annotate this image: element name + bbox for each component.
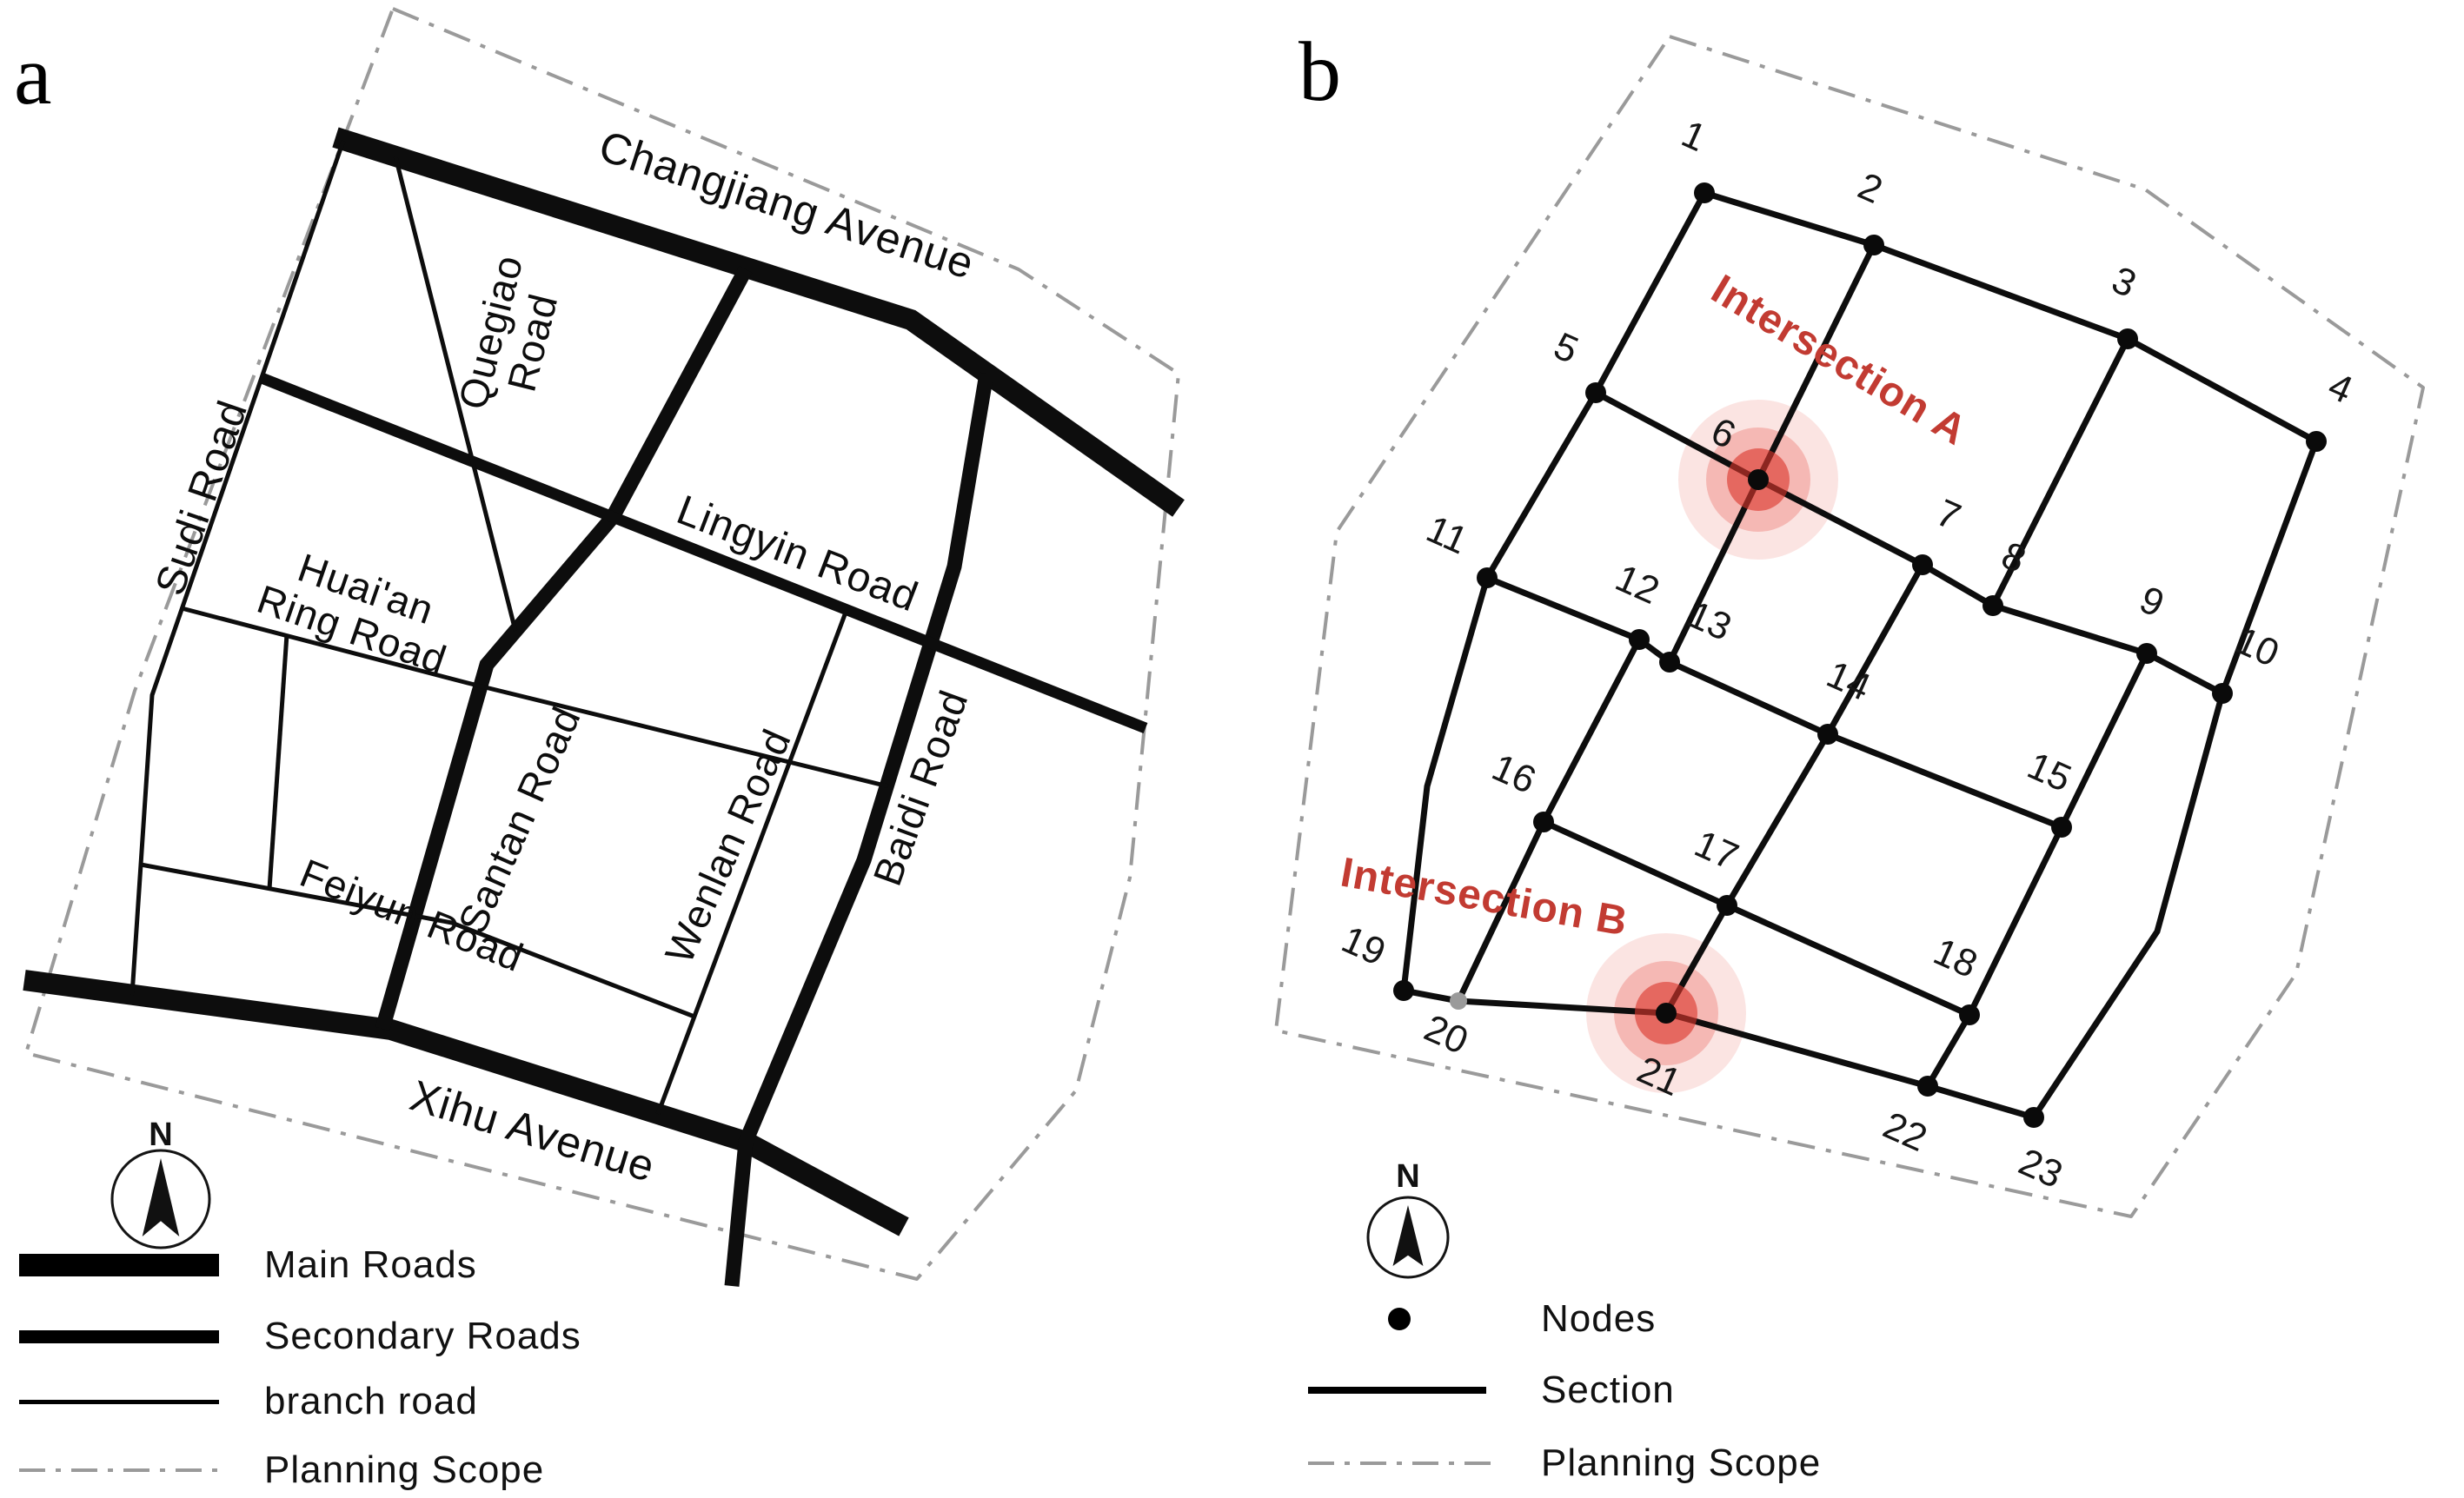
node-label-13: 13 bbox=[1682, 593, 1738, 649]
section-edge-11-19 bbox=[1404, 578, 1487, 991]
swatch-box bbox=[19, 1468, 219, 1472]
node-10 bbox=[2212, 683, 2233, 704]
node-23 bbox=[2023, 1107, 2044, 1128]
node-label-7: 7 bbox=[1930, 491, 1967, 539]
node-label-4: 4 bbox=[2322, 364, 2359, 412]
planning-scope-swatch-icon bbox=[1308, 1462, 1491, 1465]
road-label-changjiang-avenue: Changjiang Avenue bbox=[594, 122, 980, 288]
legend-a-row-secondary: Secondary Roads bbox=[19, 1312, 732, 1361]
node-label-12: 12 bbox=[1610, 556, 1666, 613]
node-label-15: 15 bbox=[2022, 744, 2078, 800]
legend-a-label-main: Main Roads bbox=[264, 1243, 477, 1287]
section-swatch-icon bbox=[1308, 1387, 1486, 1394]
node-12 bbox=[1629, 629, 1650, 650]
swatch-box bbox=[1308, 1308, 1491, 1330]
panel-b-letter: b bbox=[1298, 30, 1341, 115]
legend-b-label-scope: Planning Scope bbox=[1541, 1442, 1821, 1485]
node-3 bbox=[2117, 328, 2138, 349]
node-label-22: 22 bbox=[1877, 1104, 1934, 1160]
node-5 bbox=[1585, 382, 1606, 403]
branch-road-swatch-icon bbox=[19, 1400, 219, 1404]
node-9 bbox=[2136, 643, 2157, 664]
section-edge-9-10 bbox=[2147, 653, 2222, 693]
node-13 bbox=[1659, 652, 1680, 673]
section-edge-18-22 bbox=[1928, 1015, 1969, 1086]
section-edge-3-4 bbox=[2128, 339, 2316, 441]
node-label-19: 19 bbox=[1336, 918, 1392, 974]
section-edge-15-18 bbox=[1969, 827, 2062, 1015]
section-edge-5-11 bbox=[1487, 393, 1596, 578]
road-west-connector bbox=[269, 634, 287, 889]
node-label-16: 16 bbox=[1486, 746, 1543, 802]
node-label-8: 8 bbox=[1996, 534, 2032, 581]
planning-scope-swatch-icon bbox=[19, 1468, 219, 1472]
legend-a-label-scope: Planning Scope bbox=[264, 1448, 544, 1492]
road-label-xihu-avenue: Xihu Avenue bbox=[405, 1070, 661, 1191]
section-edge-22-23 bbox=[1928, 1086, 2034, 1117]
node-16 bbox=[1533, 812, 1554, 832]
node-15 bbox=[2051, 817, 2072, 838]
node-label-23: 23 bbox=[2013, 1140, 2069, 1196]
section-edge-12-16 bbox=[1544, 640, 1639, 822]
section-edge-1-5 bbox=[1596, 193, 1704, 393]
node-label-9: 9 bbox=[2134, 578, 2170, 626]
section-edge-1-2 bbox=[1704, 193, 1874, 245]
node-21 bbox=[1656, 1003, 1677, 1024]
nodes-swatch-icon bbox=[1388, 1308, 1411, 1330]
node-1 bbox=[1694, 182, 1715, 203]
node-label-5: 5 bbox=[1548, 324, 1584, 372]
node-19 bbox=[1393, 980, 1414, 1001]
section-edge-7-8 bbox=[1923, 565, 1993, 606]
node-11 bbox=[1477, 567, 1498, 588]
section-edge-8-9 bbox=[1993, 606, 2147, 653]
section-edge-2-3 bbox=[1874, 245, 2128, 339]
swatch-box bbox=[19, 1400, 219, 1404]
road-lingyin-road bbox=[262, 378, 1146, 728]
node-label-18: 18 bbox=[1928, 930, 1984, 986]
legend-a-label-secondary: Secondary Roads bbox=[264, 1315, 581, 1358]
node-2 bbox=[1863, 235, 1884, 255]
node-label-3: 3 bbox=[2106, 258, 2142, 306]
node-4 bbox=[2306, 431, 2327, 452]
node-20 bbox=[1450, 992, 1467, 1010]
legend-a-row-scope: Planning Scope bbox=[19, 1446, 732, 1495]
section-edge-13-14 bbox=[1670, 662, 1828, 734]
road-label-sudi-road: Sudi Road bbox=[147, 394, 256, 601]
node-17 bbox=[1717, 895, 1737, 916]
swatch-box bbox=[1308, 1462, 1491, 1465]
section-edge-9-15 bbox=[2062, 653, 2147, 827]
legend-b-row-nodes: Nodes bbox=[1308, 1295, 2090, 1343]
section-edge-7-14 bbox=[1828, 565, 1923, 734]
node-8 bbox=[1982, 595, 2003, 616]
legend-b-label-nodes: Nodes bbox=[1541, 1297, 1656, 1341]
swatch-box bbox=[1308, 1387, 1491, 1394]
road-wenlan-road bbox=[658, 610, 847, 1114]
node-14 bbox=[1817, 724, 1838, 745]
legend-a-row-branch: branch road bbox=[19, 1377, 732, 1426]
legend-b-label-section: Section bbox=[1541, 1369, 1675, 1412]
swatch-box bbox=[19, 1254, 219, 1276]
node-18 bbox=[1959, 1004, 1980, 1025]
node-7 bbox=[1912, 554, 1933, 575]
node-22 bbox=[1917, 1076, 1938, 1097]
node-label-1: 1 bbox=[1676, 112, 1712, 160]
swatch-box bbox=[19, 1330, 219, 1343]
node-label-11: 11 bbox=[1420, 507, 1474, 562]
compass-n-a: N bbox=[149, 1117, 172, 1153]
node-label-10: 10 bbox=[2229, 619, 2286, 675]
figure-stage: Changjiang AvenueSudi RoadQuegiaoRoadLin… bbox=[0, 0, 2464, 1498]
legend-a-label-branch: branch road bbox=[264, 1380, 478, 1423]
panel-a-letter: a bbox=[14, 33, 52, 118]
node-6 bbox=[1748, 469, 1769, 490]
legend-a-row-main: Main Roads bbox=[19, 1241, 732, 1289]
node-label-20: 20 bbox=[1418, 1006, 1475, 1063]
section-edge-14-17 bbox=[1727, 734, 1828, 905]
road-label-quegiao-road: QuegiaoRoad bbox=[449, 250, 573, 424]
node-label-17: 17 bbox=[1689, 822, 1745, 878]
node-label-2: 2 bbox=[1852, 164, 1889, 212]
compass-n-b: N bbox=[1396, 1158, 1419, 1195]
main-roads-swatch-icon bbox=[19, 1254, 219, 1276]
legend-b-row-scope: Planning Scope bbox=[1308, 1439, 2090, 1488]
secondary-roads-swatch-icon bbox=[19, 1330, 219, 1343]
legend-b-row-section: Section bbox=[1308, 1366, 2090, 1415]
